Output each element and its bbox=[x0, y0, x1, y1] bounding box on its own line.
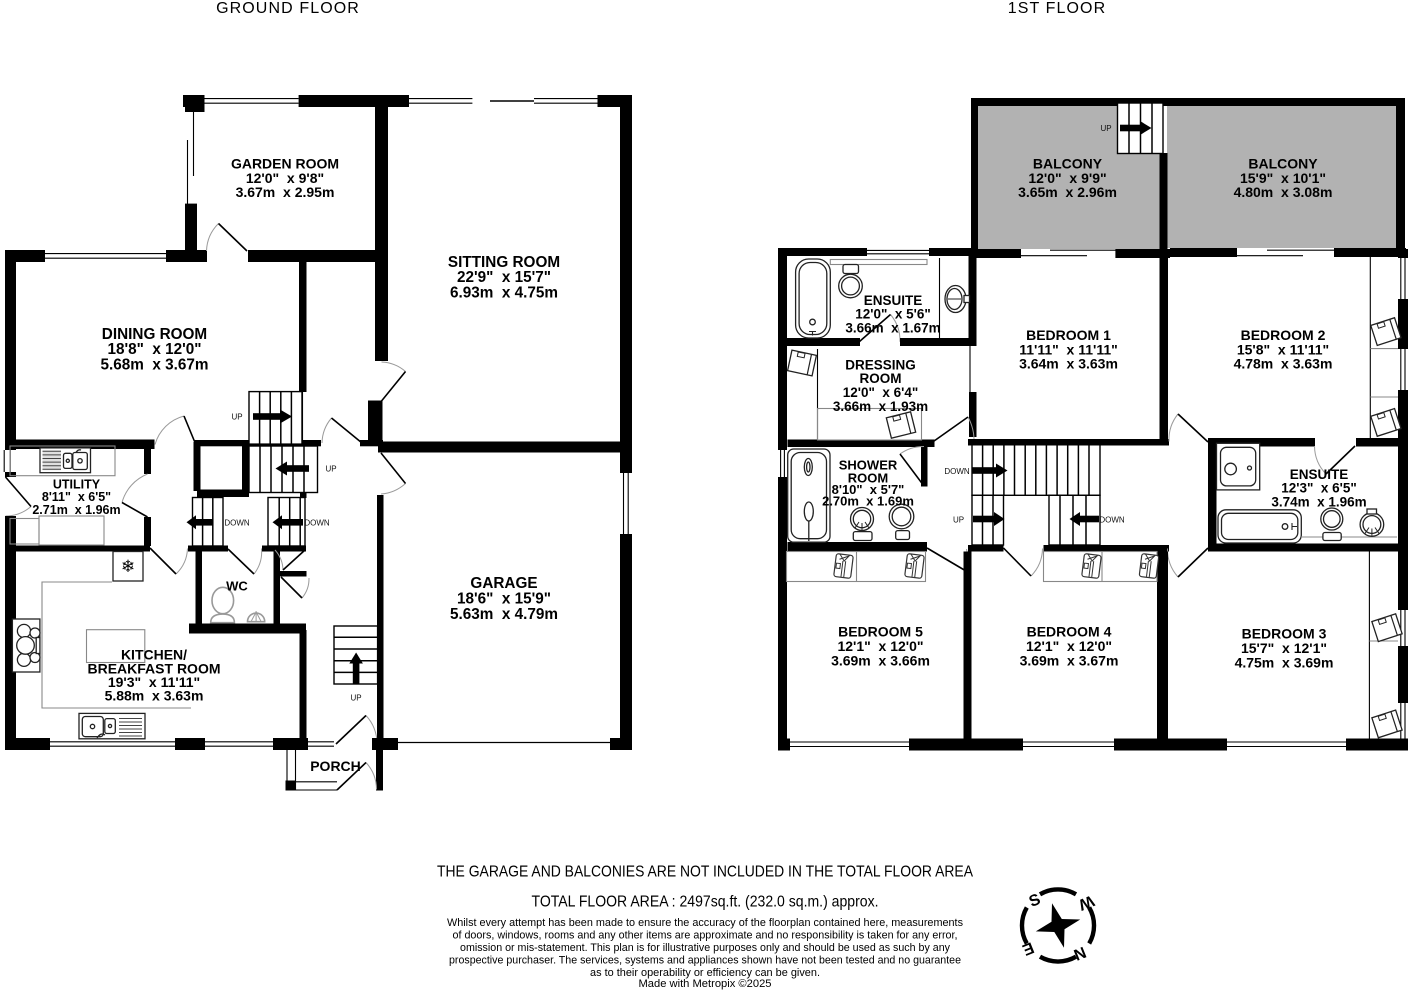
svg-text:4.80m x 3.08m: 4.80m x 3.08m bbox=[1234, 184, 1333, 200]
svg-text:prospective purchaser. The ser: prospective purchaser. The services, sys… bbox=[449, 954, 961, 966]
svg-text:DRESSING: DRESSING bbox=[845, 357, 916, 372]
svg-text:UP: UP bbox=[350, 694, 361, 703]
svg-text:ENSUITE: ENSUITE bbox=[864, 293, 923, 308]
svg-text:3.69m x 3.66m: 3.69m x 3.66m bbox=[831, 653, 930, 669]
svg-text:3.74m x 1.96m: 3.74m x 1.96m bbox=[1271, 495, 1366, 510]
svg-text:1ST FLOOR: 1ST FLOOR bbox=[1008, 0, 1107, 17]
svg-text:UP: UP bbox=[1100, 124, 1111, 133]
svg-text:ENSUITE: ENSUITE bbox=[1290, 467, 1349, 482]
svg-text:2.71m x 1.96m: 2.71m x 1.96m bbox=[32, 503, 120, 517]
svg-text:UP: UP bbox=[953, 516, 964, 525]
svg-text:THE GARAGE AND BALCONIES ARE N: THE GARAGE AND BALCONIES ARE NOT INCLUDE… bbox=[437, 864, 973, 881]
svg-text:12'0" x 6'4": 12'0" x 6'4" bbox=[843, 385, 919, 400]
svg-text:omission or mis-statement. Thi: omission or mis-statement. This plan is … bbox=[460, 942, 950, 954]
svg-text:6.93m x 4.75m: 6.93m x 4.75m bbox=[450, 285, 558, 302]
svg-text:3.66m x 1.67m: 3.66m x 1.67m bbox=[845, 321, 940, 336]
svg-text:4.75m x 3.69m: 4.75m x 3.69m bbox=[1235, 654, 1334, 670]
svg-text:5.68m x 3.67m: 5.68m x 3.67m bbox=[100, 356, 208, 373]
svg-text:4.78m x 3.63m: 4.78m x 3.63m bbox=[1234, 356, 1333, 372]
svg-text:3.66m x 1.93m: 3.66m x 1.93m bbox=[833, 399, 928, 414]
svg-text:Whilst every attempt has been: Whilst every attempt has been made to en… bbox=[447, 917, 963, 929]
svg-text:2.70m x 1.69m: 2.70m x 1.69m bbox=[822, 494, 914, 509]
svg-text:ROOM: ROOM bbox=[860, 371, 902, 386]
svg-text:GROUND FLOOR: GROUND FLOOR bbox=[216, 0, 360, 17]
svg-text:DOWN: DOWN bbox=[224, 518, 250, 527]
svg-text:WC: WC bbox=[226, 579, 248, 594]
svg-text:3.65m x 2.96m: 3.65m x 2.96m bbox=[1018, 184, 1117, 200]
svg-text:❄: ❄ bbox=[121, 557, 135, 576]
svg-text:3.67m x 2.95m: 3.67m x 2.95m bbox=[236, 184, 335, 200]
svg-text:PORCH: PORCH bbox=[310, 758, 361, 774]
svg-text:12'0" x 5'6": 12'0" x 5'6" bbox=[855, 307, 931, 322]
svg-text:3.64m x 3.63m: 3.64m x 3.63m bbox=[1019, 356, 1118, 372]
svg-text:UP: UP bbox=[325, 465, 336, 474]
svg-text:as to their operability or eff: as to their operability or efficiency ca… bbox=[590, 967, 820, 979]
svg-text:DOWN: DOWN bbox=[944, 467, 970, 476]
svg-text:5.63m x 4.79m: 5.63m x 4.79m bbox=[450, 606, 558, 623]
svg-text:UP: UP bbox=[231, 413, 242, 422]
svg-text:of doors, windows, rooms and a: of doors, windows, rooms and any other i… bbox=[453, 930, 958, 942]
svg-text:TOTAL FLOOR AREA : 2497sq.ft.: TOTAL FLOOR AREA : 2497sq.ft. (232.0 sq.… bbox=[532, 893, 879, 910]
svg-text:DOWN: DOWN bbox=[304, 518, 330, 527]
svg-text:DOWN: DOWN bbox=[1099, 516, 1125, 525]
svg-text:12'3" x 6'5": 12'3" x 6'5" bbox=[1281, 481, 1357, 496]
svg-text:3.69m x 3.67m: 3.69m x 3.67m bbox=[1020, 653, 1119, 669]
svg-text:Made with Metropix ©2025: Made with Metropix ©2025 bbox=[639, 978, 772, 990]
svg-text:5.88m x 3.63m: 5.88m x 3.63m bbox=[105, 688, 204, 704]
